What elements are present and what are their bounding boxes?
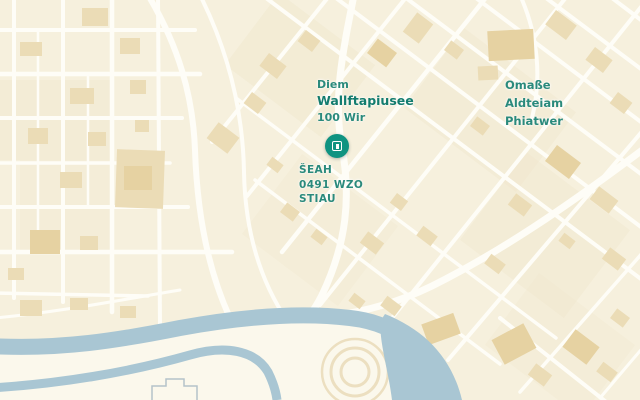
map-canvas[interactable]: Diem Wallftapiusee 100 Wir ŠEAH 0491 WZO… — [0, 0, 640, 400]
marker-label-line-1: ŠEAH — [299, 164, 363, 177]
marker-label-line-3: STIAU — [299, 193, 363, 206]
district-line-2: Wallftapiusee — [317, 93, 414, 108]
marker-label-line-2: 0491 WZO — [299, 179, 363, 192]
area-label-line-3: Phiatwer — [505, 115, 563, 129]
area-label-line-2: Aldteiam — [505, 97, 563, 111]
map-label-district: Diem Wallftapiusee 100 Wir — [317, 78, 414, 124]
map-label-marker: ŠEAH 0491 WZO STIAU — [299, 164, 363, 208]
map-label-area: Omaße Aldteiam Phiatwer — [505, 79, 563, 132]
area-label-line-1: Omaße — [505, 79, 563, 93]
transit-station-icon — [332, 141, 342, 151]
district-line-1: Diem — [317, 78, 414, 91]
district-line-3: 100 Wir — [317, 111, 414, 124]
location-marker[interactable] — [325, 134, 349, 158]
